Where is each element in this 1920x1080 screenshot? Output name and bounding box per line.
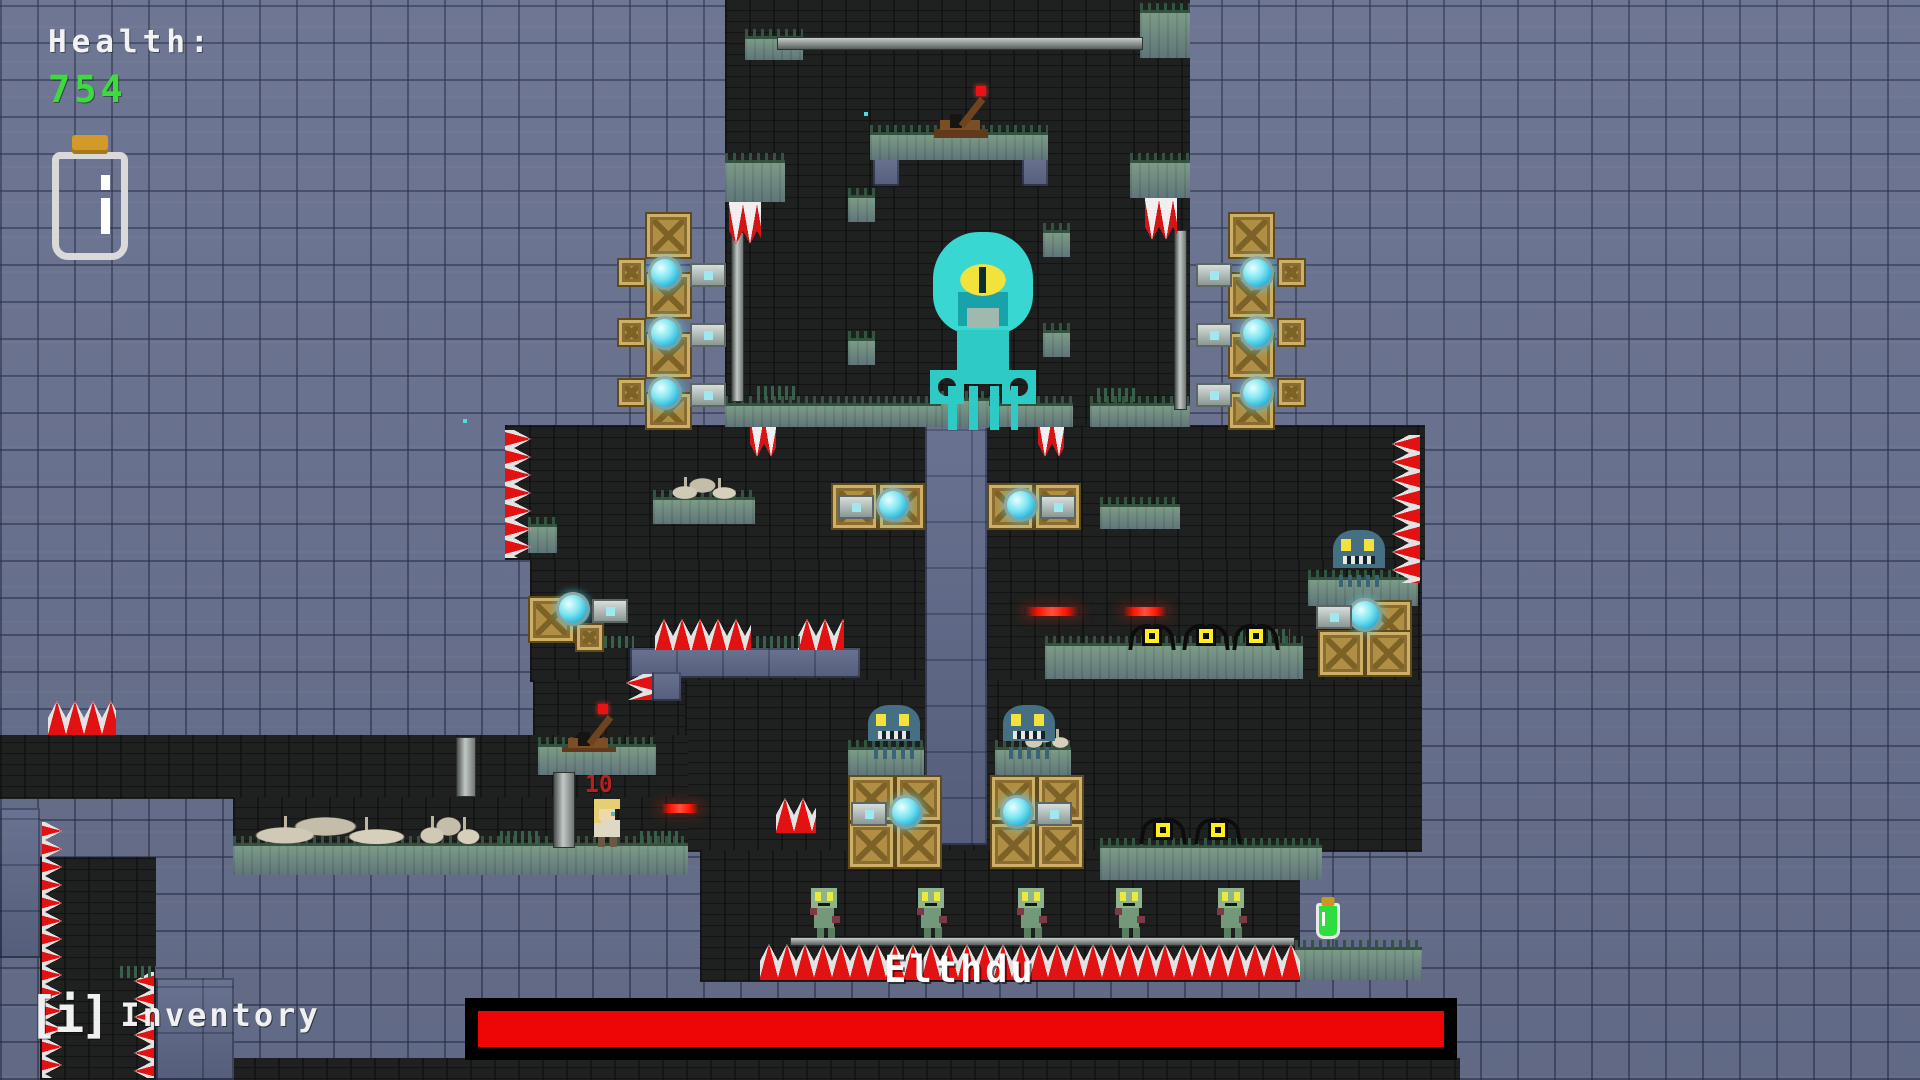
potion-cap [72,135,108,154]
spikes-down [750,427,776,457]
tuft [756,636,800,648]
grass [848,338,875,365]
grass [1130,160,1190,198]
pole-v [731,232,744,402]
blue [652,672,681,701]
bat-enemy [1130,624,1174,650]
grass [1043,230,1070,257]
crate [617,378,646,407]
bat-enemy [1184,624,1228,650]
particle [463,419,467,423]
spikes-up [798,619,844,650]
turret-r [648,316,726,350]
ruins [420,816,480,844]
squid-enemy [868,705,920,750]
ceiling-rail [777,37,1143,50]
turret-l [1196,316,1274,350]
blue [0,808,40,958]
zombie-enemy [1017,888,1049,938]
spikes-down [1038,427,1064,457]
potion-bottle-icon [52,152,128,260]
squid-enemy [1333,530,1385,578]
inventory-hint[interactable]: [i] Inventory [28,986,321,1044]
particle [864,112,868,116]
boss-squid [928,232,1038,432]
turret-l [838,488,910,522]
tuft [604,636,634,648]
bones [672,477,736,499]
zombie-enemy [1115,888,1147,938]
tuft [757,386,795,400]
crate [848,822,895,869]
crate [1037,822,1084,869]
grass [1140,10,1190,58]
crate [1318,630,1365,677]
boss-health-bar [465,998,1457,1060]
potion-shine-dot [101,175,110,190]
crate [617,318,646,347]
turret-r [1004,488,1076,522]
game-stage[interactable] [0,0,1920,1080]
crate [617,258,646,287]
squid-enemy [1003,705,1055,750]
turret-l [1196,376,1274,410]
player-character [590,799,624,847]
spikes-left [1392,435,1420,583]
turret-l [851,795,923,829]
zombie-enemy [917,888,949,938]
grass [233,843,688,875]
crate [1277,258,1306,287]
crate [990,822,1037,869]
turret-l [1196,256,1274,290]
tuft [1097,388,1137,402]
pole-v [553,772,575,848]
crate [895,822,942,869]
potion-shine-bar [101,198,110,234]
inventory-key: [i] [28,986,106,1044]
grass [1100,845,1322,880]
blue [873,158,899,186]
boss-name: Elthdu [0,948,1920,991]
grass [725,160,785,202]
lever [560,708,616,752]
tuft [640,831,680,844]
turret-r [648,376,726,410]
green-potion-pickup [1316,903,1340,939]
spikes-down [1145,198,1177,240]
bat-enemy [1196,818,1240,846]
ruins [255,816,405,844]
grass [1043,330,1070,357]
damage-number: 10 [585,772,613,798]
turret-r [556,592,628,626]
turret-r [1000,795,1072,829]
crate [1365,630,1412,677]
spikes-down [729,202,761,244]
bottom-strip [230,1058,1460,1080]
grass [1100,504,1180,529]
spikes-left [626,674,652,700]
turret-r [648,256,726,290]
bat-enemy [1234,624,1278,650]
crate [645,212,692,259]
crate [1228,212,1275,259]
red-laser [660,804,700,813]
bat-enemy [1141,818,1185,846]
zombie-enemy [1217,888,1249,938]
health-display: Health: 754 [48,24,214,111]
spikes-right [505,430,531,558]
boss-health-fill [478,1011,1444,1047]
zombie-enemy [810,888,842,938]
spikes-up [776,798,816,833]
spikes-up [48,701,116,735]
health-label: Health: [48,24,214,60]
health-value: 754 [48,68,214,111]
grass [653,497,755,524]
grass [528,524,557,553]
crate [1277,318,1306,347]
grass [848,195,875,222]
crate [575,623,604,652]
grass [725,403,845,427]
pole-v [456,737,476,797]
red-laser [1024,607,1080,616]
lever [932,90,994,138]
crate [1277,378,1306,407]
red-laser [1122,607,1168,616]
pole-v [1174,230,1187,410]
inventory-label: Inventory [120,996,320,1034]
spikes-up [655,619,751,650]
turret-l [1316,598,1382,630]
tuft [500,831,540,844]
blue [1022,158,1048,186]
